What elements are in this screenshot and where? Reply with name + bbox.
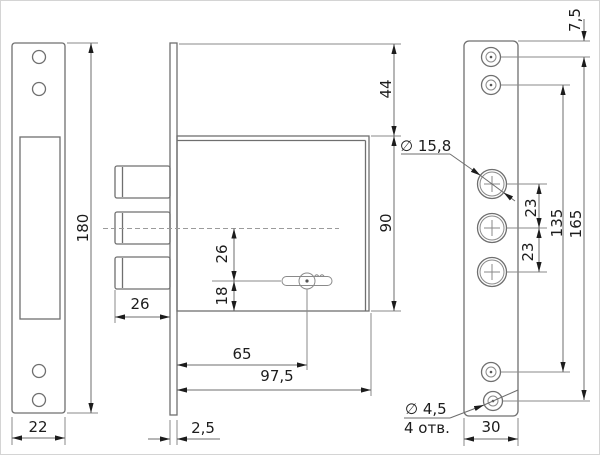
dim-label-keyhole-offset: 65: [232, 345, 251, 363]
strike-plate-hole-top-1: [33, 51, 46, 64]
dim-label-case-height: 90: [377, 213, 395, 232]
dim-label-hole-pitch-lower: 23: [519, 242, 537, 261]
bolt-3: [115, 257, 170, 289]
dim-label-keyhole-to-bottom: 18: [213, 286, 231, 305]
screw-hole-bottom-1: [482, 363, 501, 382]
dim-label-case-depth: 97,5: [260, 367, 293, 385]
lock-case-outline: [177, 136, 369, 311]
keyhole: [282, 273, 332, 289]
faceplate-view: 7,5 ∅ 15,8 23 23 135 165 ∅ 4,5 4 отв. 30: [400, 8, 590, 446]
strike-plate-hole-bottom-1: [33, 365, 46, 378]
dim-label-edge-to-first-hole: 7,5: [566, 8, 584, 32]
dim-label-inner-span: 135: [548, 209, 566, 238]
strike-plate-view: 180 22: [12, 43, 98, 445]
dim-label-faceplate-thickness: 2,5: [191, 419, 215, 437]
lock-body-view: 44 90 26 26 18 65 97,5 2,5: [103, 43, 401, 445]
dim-label-screw-hole-count: 4 отв.: [404, 419, 450, 437]
lock-technical-drawing: 180 22: [0, 0, 600, 455]
dim-label-cylinder-hole-diameter: ∅ 15,8: [400, 137, 451, 155]
dim-label-bolt-length: 26: [130, 295, 149, 313]
dim-label-faceplate-width: 30: [481, 418, 500, 436]
strike-plate-cutout: [20, 137, 60, 319]
screw-hole-top-2: [482, 76, 501, 95]
dim-label-hole-pitch-upper: 23: [522, 198, 540, 217]
bolt-1: [115, 166, 170, 198]
screw-hole-top-1: [482, 48, 501, 67]
dim-label-screw-hole-diameter: ∅ 4,5: [405, 400, 447, 418]
drawing-svg: 180 22: [1, 1, 600, 455]
cylinder-hole-2: [478, 214, 507, 243]
dim-label-axis-to-keyhole: 26: [213, 244, 231, 263]
dim-label-outer-span: 165: [567, 210, 585, 239]
dim-label-plate-height: 180: [74, 214, 92, 243]
dim-label-plate-width: 22: [28, 418, 47, 436]
dim-label-top-to-case: 44: [377, 79, 395, 98]
cylinder-hole-3: [478, 258, 507, 287]
strike-plate-hole-bottom-2: [33, 394, 46, 407]
strike-plate-hole-top-2: [33, 83, 46, 96]
